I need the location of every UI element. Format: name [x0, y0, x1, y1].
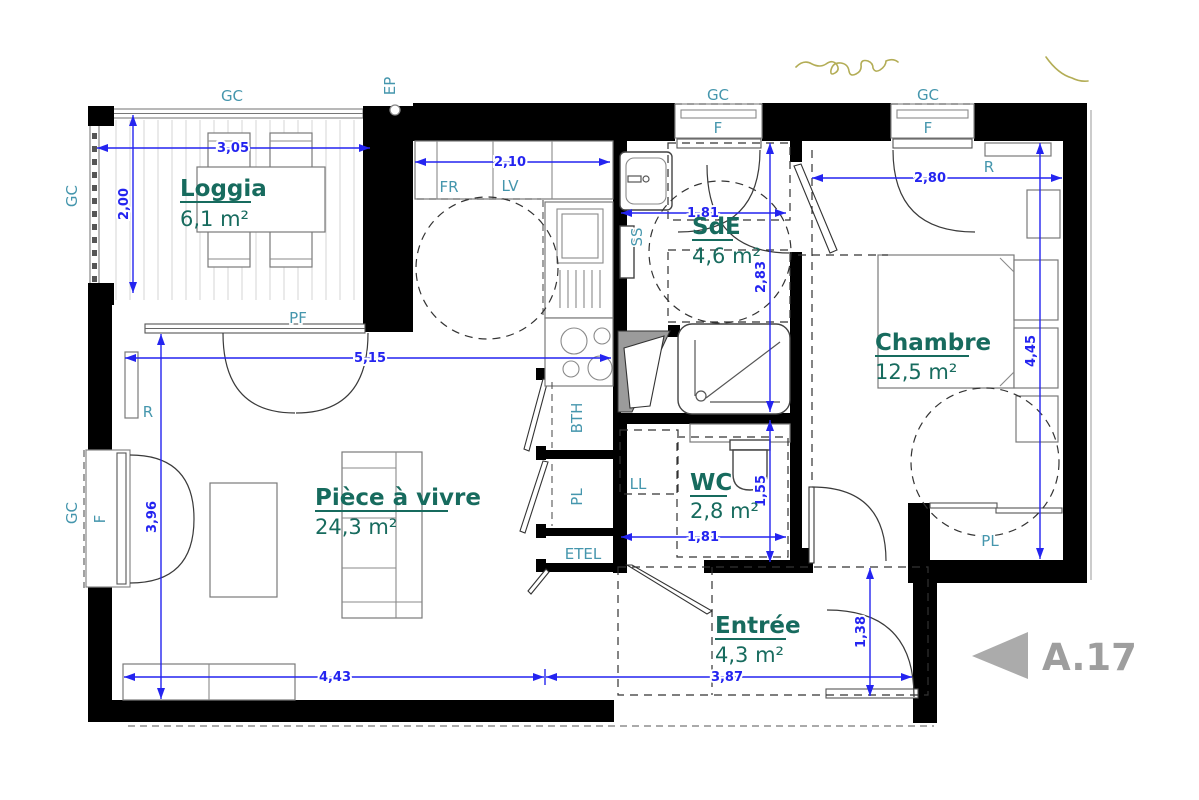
room-area-loggia: 6,1 m²: [180, 207, 249, 231]
dim-entree-height: 1,38: [854, 616, 869, 648]
tag-r-chambre: R: [984, 158, 994, 176]
toilet-tank: [730, 440, 770, 450]
pl-door-leaf: [520, 461, 548, 533]
etel-door-leaf: [528, 569, 549, 594]
room-area-wc: 2,8 m²: [690, 499, 759, 523]
loggia-chair: [208, 231, 250, 267]
radiator-living: [125, 352, 138, 418]
coffee-table: [210, 483, 277, 597]
tag-etel: ETEL: [565, 545, 602, 563]
tag-gc-loggia: GC: [221, 87, 243, 105]
tag-pl-chambre: PL: [981, 532, 999, 550]
tag-lv: LV: [502, 177, 520, 195]
tag-ss: SS: [628, 227, 646, 246]
dim-chambre-height: 4,45: [1024, 335, 1039, 367]
room-name-living: Pièce à vivre: [315, 485, 481, 511]
dim-living-height: 3,96: [145, 501, 160, 533]
room-name-entree: Entrée: [715, 613, 801, 639]
chambre-window-glass: [893, 139, 972, 148]
room-area-sde: 4,6 m²: [692, 244, 761, 268]
wc-door-leaf: [627, 565, 712, 614]
pf-door-arc: [223, 333, 295, 413]
tag-bth: BTH: [568, 403, 586, 434]
chambre-door-arc: [812, 487, 886, 561]
dim-living-bottom: 4,43: [319, 670, 351, 685]
dim-loggia-height: 2,00: [117, 188, 132, 220]
tag-gc-chambre: GC: [917, 86, 939, 104]
section-arrow-icon: [972, 632, 1028, 679]
pl-sliding-door: [996, 508, 1062, 513]
turning-circle-kitchen: [416, 197, 558, 339]
pl-sliding-door: [930, 503, 997, 508]
olive-scribble: [796, 60, 898, 75]
ep-downspout-icon: [390, 105, 400, 115]
tag-r-living: R: [143, 403, 153, 421]
living-window-arc: [130, 519, 194, 583]
olive-curve: [1046, 57, 1088, 81]
room-area-chambre: 12,5 m²: [875, 360, 957, 384]
chambre-window-arc: [893, 150, 975, 232]
dim-wc-width: 1,81: [687, 530, 719, 545]
room-area-living: 24,3 m²: [315, 515, 397, 539]
bth-door-leaf: [524, 379, 548, 451]
living-window-glass: [117, 453, 126, 584]
nightstand: [1016, 396, 1058, 442]
wc-shelf: [690, 424, 790, 442]
room-name-wc: WC: [690, 470, 732, 496]
room-name-loggia: Loggia: [180, 176, 267, 202]
tag-f-chambre: F: [924, 119, 933, 137]
dim-loggia-width: 3,05: [217, 141, 249, 156]
loggia-chair: [270, 133, 312, 169]
tag-fr: FR: [439, 178, 458, 196]
pillow: [1014, 260, 1058, 320]
floor-plan-svg: 3,05 2,00 2,10 1,81 2,83 2,80 4,45 5,15 …: [0, 0, 1199, 800]
nightstand: [1027, 190, 1060, 238]
room-name-chambre: Chambre: [875, 330, 991, 356]
tag-gc-left-lower: GC: [63, 502, 81, 524]
loggia-left-railing: [90, 118, 99, 302]
loggia-chair: [270, 231, 312, 267]
dim-entree-width: 3,87: [711, 670, 743, 685]
dim-chambre-width: 2,80: [914, 171, 946, 186]
tag-gc-left-upper: GC: [63, 185, 81, 207]
dim-living-width: 5,15: [354, 351, 386, 366]
room-name-sde: SdE: [692, 214, 741, 240]
chambre-door-leaf: [809, 487, 814, 563]
tag-f-sde: F: [714, 119, 723, 137]
tag-ep: EP: [381, 77, 399, 96]
room-area-entree: 4,3 m²: [715, 643, 784, 667]
tag-ll: LL: [630, 475, 647, 493]
section-reference: A.17: [1042, 636, 1137, 679]
pf-door-arc: [296, 333, 368, 413]
tag-pf: PF: [289, 309, 307, 327]
tag-gc-sde: GC: [707, 86, 729, 104]
floor-plan-canvas: 3,05 2,00 2,10 1,81 2,83 2,80 4,45 5,15 …: [0, 0, 1199, 800]
tag-pl-closet: PL: [568, 488, 586, 506]
tag-f-living: F: [91, 515, 109, 524]
dim-kitchen-width: 2,10: [494, 155, 526, 170]
chambre-window-box: [891, 104, 974, 138]
pocket-door-leaf: [624, 336, 664, 408]
living-window-arc: [130, 455, 194, 519]
